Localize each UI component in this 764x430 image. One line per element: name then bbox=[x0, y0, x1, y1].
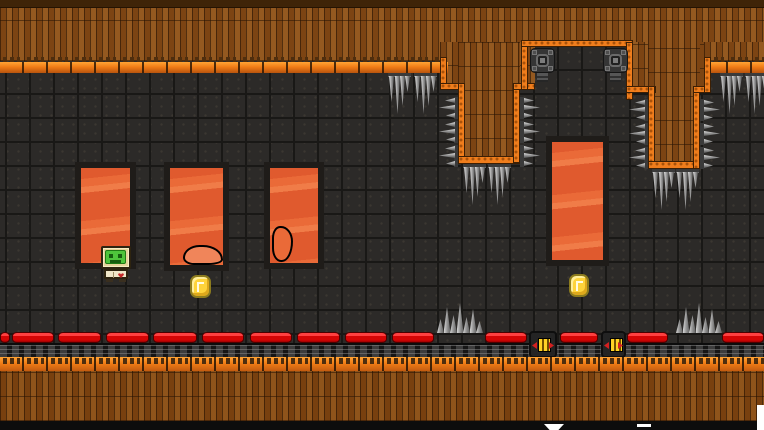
spike-icon bbox=[704, 155, 720, 160]
offscreen-sprite-fragment bbox=[757, 405, 764, 430]
rail-segment bbox=[12, 332, 54, 343]
rail-segment bbox=[153, 332, 197, 343]
spike-icon bbox=[476, 321, 483, 333]
wall-spike-cluster-right bbox=[520, 121, 541, 143]
turret-core bbox=[540, 58, 545, 63]
player-body-seam bbox=[113, 272, 114, 278]
player-eye-left bbox=[109, 254, 113, 258]
spike-icon bbox=[524, 105, 540, 110]
coin bbox=[190, 275, 211, 298]
spike-icon bbox=[696, 303, 703, 333]
turret-knob bbox=[621, 66, 626, 71]
wall-spike-cluster-left bbox=[437, 97, 458, 119]
wall-spike-cluster-left bbox=[627, 123, 648, 145]
arrow-right-icon bbox=[549, 342, 554, 349]
player-screen-face bbox=[105, 250, 126, 264]
spike-icon bbox=[629, 107, 645, 112]
spike-icon bbox=[737, 76, 742, 92]
spike-icon bbox=[676, 319, 683, 333]
spike-icon bbox=[439, 129, 455, 134]
spike-icon bbox=[653, 172, 658, 198]
heart-icon bbox=[118, 273, 124, 278]
orange-brick-edge bbox=[513, 83, 520, 163]
player-mouth bbox=[110, 260, 121, 263]
turret-knob bbox=[548, 66, 553, 71]
player-eye-right bbox=[118, 254, 122, 258]
spike-icon bbox=[495, 167, 500, 205]
player-foot-left bbox=[106, 279, 113, 282]
spike-icon bbox=[702, 317, 709, 333]
orange-brick-edge bbox=[521, 40, 633, 47]
spike-icon bbox=[524, 146, 534, 151]
spike-icon bbox=[629, 131, 645, 136]
rail-segment bbox=[202, 332, 244, 343]
spike-icon bbox=[757, 76, 762, 106]
spike-icon bbox=[636, 139, 645, 144]
spike-icon bbox=[689, 315, 696, 333]
spike-icon bbox=[704, 139, 713, 144]
spike-icon bbox=[444, 307, 451, 333]
orange-brick-edge bbox=[648, 86, 655, 169]
turret-core bbox=[613, 58, 618, 63]
spike-icon bbox=[683, 172, 688, 210]
spike-icon bbox=[475, 167, 480, 197]
hanging-spike-cluster bbox=[388, 73, 411, 115]
spike-icon bbox=[746, 76, 751, 102]
spike-icon bbox=[752, 76, 757, 114]
spike-icon bbox=[524, 153, 540, 158]
spike-icon bbox=[659, 172, 664, 210]
spike-icon bbox=[439, 153, 455, 158]
rail-segment bbox=[722, 332, 764, 343]
lava-pillar bbox=[552, 142, 603, 260]
spike-icon bbox=[470, 309, 477, 333]
spike-icon bbox=[721, 76, 726, 102]
spike-icon bbox=[524, 137, 533, 142]
spike-icon bbox=[426, 76, 431, 106]
wall-spike-cluster-left bbox=[437, 121, 458, 143]
wall-spike-cluster-right bbox=[520, 145, 541, 167]
turret-knob bbox=[605, 66, 610, 71]
spike-icon bbox=[405, 76, 410, 92]
ceiling-turret bbox=[603, 48, 628, 73]
spike-icon bbox=[445, 146, 455, 151]
spike-icon bbox=[446, 113, 455, 118]
spike-icon bbox=[450, 315, 457, 333]
spike-icon bbox=[704, 107, 720, 112]
ceiling-top-strip bbox=[0, 0, 764, 8]
spike-icon bbox=[480, 167, 485, 183]
spike-icon bbox=[457, 303, 464, 333]
turret-knob bbox=[548, 50, 553, 55]
rail-segment bbox=[58, 332, 101, 343]
wall-spike-cluster-right bbox=[700, 99, 721, 121]
spike-base bbox=[520, 145, 524, 167]
turret-exhaust bbox=[537, 73, 548, 82]
wall-spike-cluster-left bbox=[627, 99, 648, 121]
hanging-spike-cluster bbox=[652, 169, 675, 211]
spike-icon bbox=[635, 100, 645, 105]
rail-segment bbox=[392, 332, 434, 343]
hanging-spike-cluster bbox=[414, 73, 437, 115]
stripe-device-box bbox=[529, 331, 557, 358]
spike-icon bbox=[524, 113, 533, 118]
hanging-spike-cluster bbox=[488, 164, 511, 206]
spike-icon bbox=[704, 148, 714, 153]
spike-icon bbox=[400, 76, 405, 106]
coin-shine-mark bbox=[576, 281, 583, 291]
floor-spike-cluster bbox=[437, 303, 483, 333]
orange-brick-edge bbox=[704, 57, 711, 93]
spike-icon bbox=[635, 124, 645, 129]
spike-icon bbox=[524, 98, 534, 103]
wall-spike-cluster-right bbox=[520, 97, 541, 119]
spike-icon bbox=[688, 172, 693, 202]
spike-icon bbox=[704, 124, 714, 129]
spike-icon bbox=[446, 137, 455, 142]
spike-icon bbox=[464, 167, 469, 193]
orange-brick-edge bbox=[521, 42, 528, 90]
spike-icon bbox=[683, 307, 690, 333]
spike-icon bbox=[727, 76, 732, 114]
orange-brick-edge bbox=[693, 86, 700, 169]
spike-icon bbox=[463, 317, 470, 333]
coin-shine-mark bbox=[197, 282, 204, 292]
spike-icon bbox=[500, 167, 505, 197]
spike-icon bbox=[636, 115, 645, 120]
rail-segment bbox=[345, 332, 387, 343]
spike-icon bbox=[636, 163, 645, 168]
spike-icon bbox=[439, 105, 455, 110]
rail-segment bbox=[250, 332, 292, 343]
rail-segment bbox=[297, 332, 340, 343]
spike-icon bbox=[635, 148, 645, 153]
spike-icon bbox=[431, 76, 436, 92]
spike-icon bbox=[669, 172, 674, 188]
arrow-left-icon bbox=[604, 342, 609, 349]
spike-base bbox=[700, 147, 704, 169]
hanging-spike-cluster bbox=[720, 73, 743, 115]
spike-icon bbox=[715, 321, 722, 333]
spike-icon bbox=[445, 122, 455, 127]
wall-spike-cluster-left bbox=[437, 145, 458, 167]
spike-icon bbox=[524, 122, 534, 127]
wall-spike-cluster-left bbox=[627, 147, 648, 169]
spike-icon bbox=[437, 319, 444, 333]
coin bbox=[569, 274, 589, 297]
spike-icon bbox=[704, 131, 720, 136]
spike-icon bbox=[505, 167, 510, 183]
orange-brick-edge bbox=[458, 156, 520, 164]
rail-segment bbox=[485, 332, 527, 343]
floor-spike-cluster bbox=[676, 303, 722, 333]
rail-segment bbox=[627, 332, 668, 343]
turret-exhaust bbox=[610, 73, 621, 82]
stripe-device-box bbox=[601, 331, 626, 358]
orange-brick-edge bbox=[458, 83, 465, 163]
ceiling-turret bbox=[530, 48, 555, 73]
rail-segment bbox=[0, 332, 10, 343]
wall-spike-cluster-right bbox=[700, 123, 721, 145]
ceiling-plank-segment bbox=[458, 42, 520, 163]
turret-knob bbox=[621, 50, 626, 55]
spike-icon bbox=[629, 155, 645, 160]
wall-spike-cluster-right bbox=[700, 147, 721, 169]
rail-segment bbox=[560, 332, 598, 343]
spike-icon bbox=[704, 100, 714, 105]
spike-icon bbox=[704, 115, 713, 120]
spike-icon bbox=[489, 167, 494, 193]
rail-support-legs bbox=[0, 343, 764, 358]
spike-icon bbox=[524, 161, 533, 166]
spike-icon bbox=[470, 167, 475, 205]
spike-icon bbox=[709, 309, 716, 333]
hanging-spike-cluster bbox=[676, 169, 699, 211]
spike-base bbox=[520, 97, 524, 119]
spike-icon bbox=[389, 76, 394, 102]
player-character bbox=[100, 246, 134, 282]
game-viewport[interactable] bbox=[0, 0, 764, 430]
spike-icon bbox=[704, 163, 713, 168]
spike-icon bbox=[445, 98, 455, 103]
spike-icon bbox=[664, 172, 669, 202]
hanging-spike-cluster bbox=[745, 73, 764, 115]
floor-planks bbox=[0, 371, 764, 421]
spike-base bbox=[700, 99, 704, 121]
spike-icon bbox=[524, 129, 540, 134]
player-head bbox=[101, 246, 131, 269]
turret-knob bbox=[532, 66, 537, 71]
spike-icon bbox=[421, 76, 426, 114]
spike-icon bbox=[693, 172, 698, 188]
player-body bbox=[104, 269, 128, 279]
spike-icon bbox=[732, 76, 737, 106]
ceiling-ledge-row bbox=[704, 57, 764, 73]
hanging-spike-cluster bbox=[463, 164, 486, 206]
spike-base bbox=[520, 121, 524, 143]
arrow-left-icon bbox=[532, 342, 537, 349]
spike-icon bbox=[415, 76, 420, 102]
offscreen-sprite-fragment bbox=[637, 424, 651, 427]
spike-base bbox=[700, 123, 704, 145]
rail-segment bbox=[106, 332, 149, 343]
player-foot-right bbox=[119, 279, 126, 282]
ceiling-ledge-row bbox=[0, 57, 448, 73]
spike-icon bbox=[677, 172, 682, 198]
spike-icon bbox=[395, 76, 400, 114]
spike-icon bbox=[446, 161, 455, 166]
